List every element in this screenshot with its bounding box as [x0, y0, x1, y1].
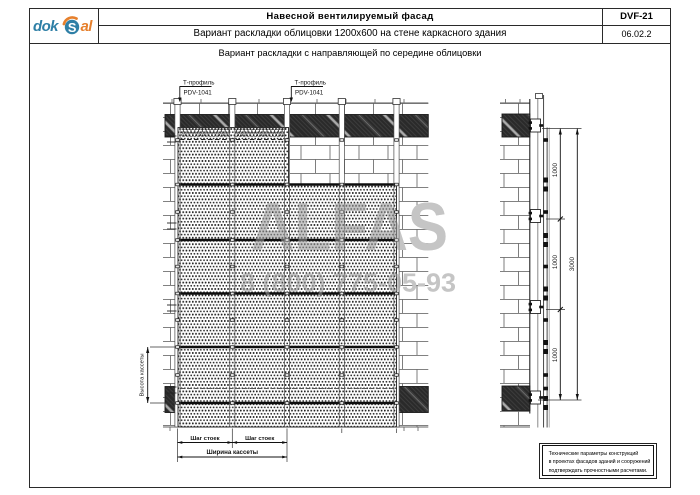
svg-text:ALFAS: ALFAS	[251, 189, 448, 265]
svg-text:Высота кассеты: Высота кассеты	[140, 353, 146, 396]
svg-text:Ширина кассеты: Ширина кассеты	[206, 449, 258, 456]
svg-text:1000: 1000	[552, 254, 559, 269]
svg-text:1000: 1000	[552, 162, 559, 177]
svg-text:3000: 3000	[569, 256, 576, 271]
svg-text:Т-профиль: Т-профиль	[295, 80, 326, 87]
svg-text:Т-профиль: Т-профиль	[183, 80, 214, 87]
svg-text:1000: 1000	[552, 347, 559, 362]
svg-text:PDV-1041: PDV-1041	[184, 90, 213, 97]
svg-text:PDV-1041: PDV-1041	[295, 90, 324, 97]
svg-text:Шаг стоек: Шаг стоек	[245, 436, 274, 442]
svg-text:Шаг стоек: Шаг стоек	[190, 436, 219, 442]
svg-text:8 (800) 775-05-93: 8 (800) 775-05-93	[240, 268, 456, 298]
